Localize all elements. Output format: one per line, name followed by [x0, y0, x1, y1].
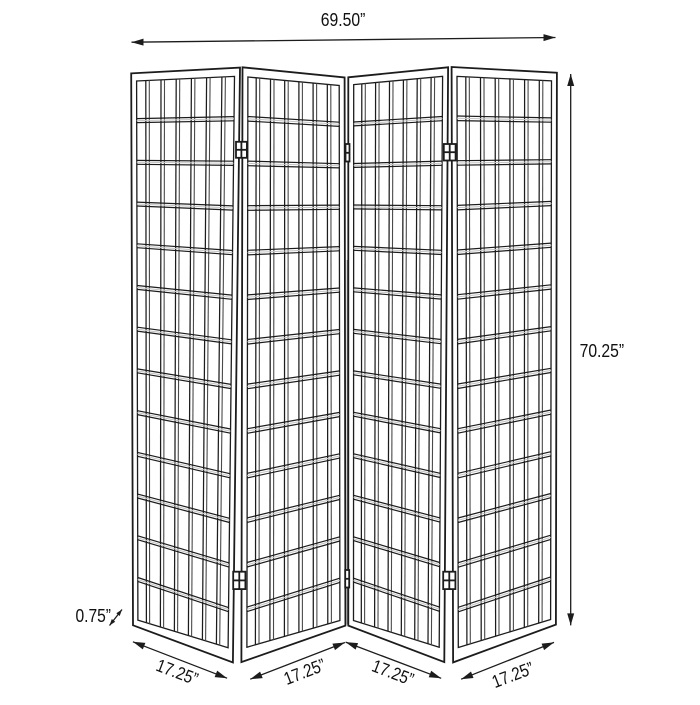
svg-text:0.75”: 0.75” [76, 606, 112, 626]
svg-text:69.50”: 69.50” [321, 10, 366, 30]
svg-text:70.25”: 70.25” [580, 341, 625, 361]
